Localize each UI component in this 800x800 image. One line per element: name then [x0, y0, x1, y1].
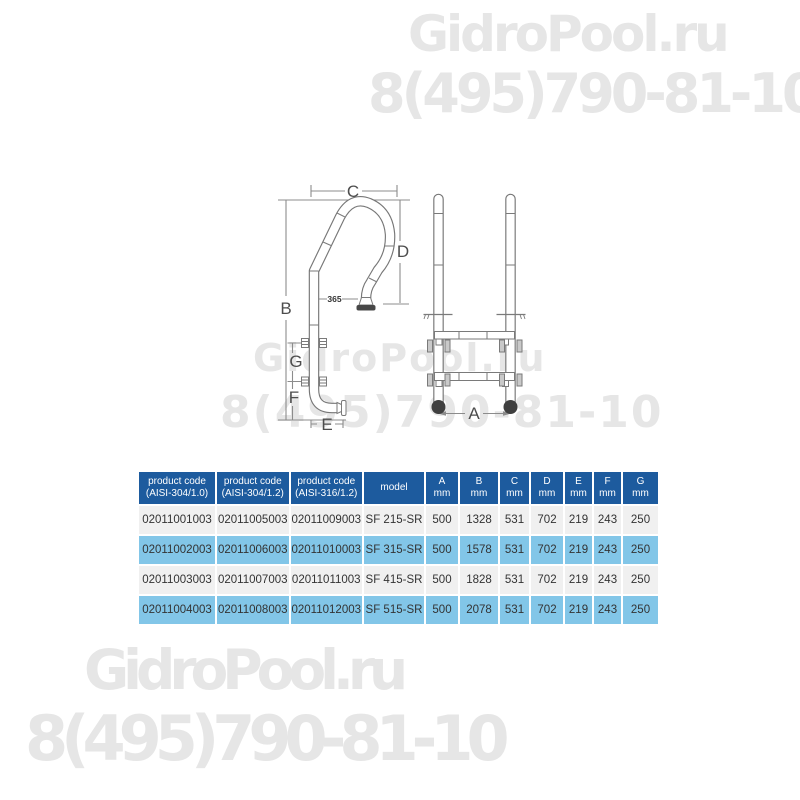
table-cell: 219: [565, 506, 592, 534]
tube-joint-marks: [310, 213, 516, 325]
table-cell: 531: [500, 536, 529, 564]
table-cell: 250: [623, 566, 658, 594]
col-header-b: Bmm: [460, 472, 498, 504]
table-cell: 250: [623, 506, 658, 534]
table-cell: 1578: [460, 536, 498, 564]
dim-label-e: E: [321, 415, 332, 434]
table-cell: 02011012003: [291, 596, 363, 624]
col-header-c: Cmm: [500, 472, 529, 504]
table-cell: 02011010003: [291, 536, 363, 564]
dim-label-365: 365: [327, 294, 341, 304]
table-cell: 243: [594, 536, 621, 564]
table-cell: 219: [565, 566, 592, 594]
table-row: 02011003003 02011007003 02011011003 SF 4…: [139, 566, 658, 594]
table-cell: 02011006003: [217, 536, 289, 564]
table-cell: 02011001003: [139, 506, 215, 534]
table-cell: SF 315-SR: [364, 536, 424, 564]
table-cell: 531: [500, 506, 529, 534]
col-header-a: Amm: [426, 472, 458, 504]
table-cell: 500: [426, 596, 458, 624]
table-cell: 1828: [460, 566, 498, 594]
col-header-e: Emm: [565, 472, 592, 504]
col-header-model: model: [364, 472, 424, 504]
table-cell: 02011002003: [139, 536, 215, 564]
col-header-product-code-316-12: product code(AISI-316/1.2): [291, 472, 363, 504]
col-header-product-code-304-12: product code(AISI-304/1.2): [217, 472, 289, 504]
table-row: 02011002003 02011006003 02011010003 SF 3…: [139, 536, 658, 564]
col-header-d: Dmm: [531, 472, 563, 504]
table-cell: 02011008003: [217, 596, 289, 624]
table-cell: 500: [426, 506, 458, 534]
table-cell: 02011011003: [291, 566, 363, 594]
table-cell: 219: [565, 536, 592, 564]
table-cell: SF 215-SR: [364, 506, 424, 534]
table-cell: 500: [426, 536, 458, 564]
col-header-g: Gmm: [623, 472, 658, 504]
dim-label-c: C: [347, 182, 359, 201]
col-header-product-code-304-10: product code(AISI-304/1.0): [139, 472, 215, 504]
table-cell: 531: [500, 596, 529, 624]
dim-label-d: D: [397, 242, 409, 261]
dim-label-g: G: [289, 352, 302, 371]
specs-table: product code(AISI-304/1.0) product code(…: [137, 470, 660, 626]
table-cell: 702: [531, 566, 563, 594]
table-cell: 02011004003: [139, 596, 215, 624]
table-cell: 2078: [460, 596, 498, 624]
table-cell: 250: [623, 536, 658, 564]
table-cell: 02011003003: [139, 566, 215, 594]
table-cell: 02011007003: [217, 566, 289, 594]
dim-label-a: A: [468, 404, 480, 423]
table-cell: 1328: [460, 506, 498, 534]
table-cell: 250: [623, 596, 658, 624]
wall-flange: [337, 401, 346, 416]
table-cell: 531: [500, 566, 529, 594]
table-cell: SF 415-SR: [364, 566, 424, 594]
deck-anchor-side: [357, 298, 376, 311]
table-cell: 500: [426, 566, 458, 594]
table-cell: 243: [594, 506, 621, 534]
table-cell: 02011009003: [291, 506, 363, 534]
table-row: 02011001003 02011005003 02011009003 SF 2…: [139, 506, 658, 534]
table-cell: 219: [565, 596, 592, 624]
table-cell: 702: [531, 536, 563, 564]
ladder-technical-drawing: C B D G F E A 365: [0, 0, 800, 800]
col-header-f: Fmm: [594, 472, 621, 504]
table-cell: 243: [594, 596, 621, 624]
table-header-row: product code(AISI-304/1.0) product code(…: [139, 472, 658, 504]
table-cell: 702: [531, 506, 563, 534]
table-row: 02011004003 02011008003 02011012003 SF 5…: [139, 596, 658, 624]
table-cell: 243: [594, 566, 621, 594]
dim-label-b: B: [280, 299, 291, 318]
table-cell: 702: [531, 596, 563, 624]
table-cell: SF 515-SR: [364, 596, 424, 624]
datasheet-page: GidroPool.ru 8(495)790-81-10 GidroPool.r…: [0, 0, 800, 800]
dim-label-f: F: [289, 388, 299, 407]
table-cell: 02011005003: [217, 506, 289, 534]
